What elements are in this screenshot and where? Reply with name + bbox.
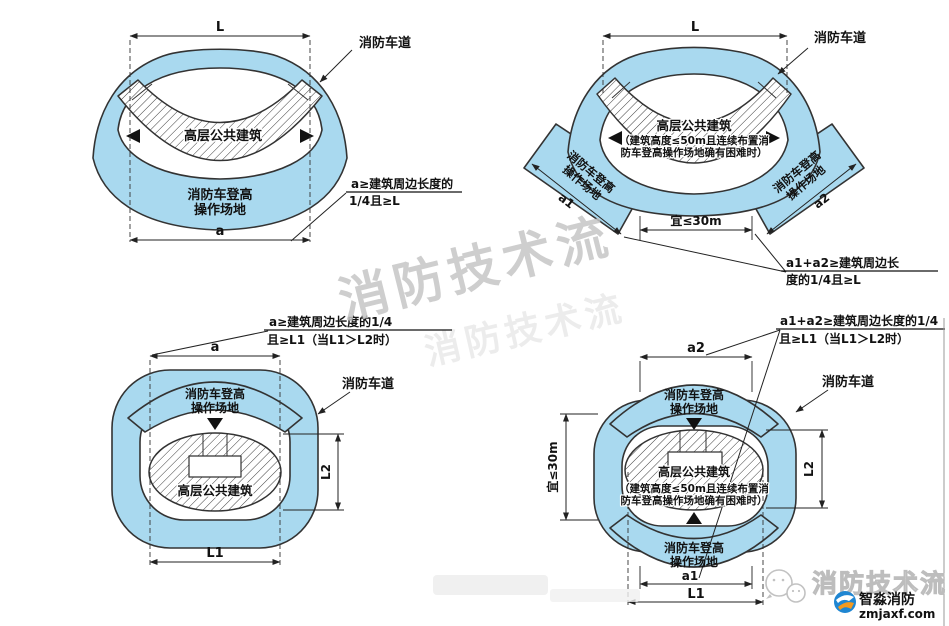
dim-label-gap: 宜≤30m bbox=[545, 441, 560, 492]
fire-lane-label: 消防车道 bbox=[822, 374, 874, 390]
building-label: 高层公共建筑 bbox=[177, 483, 253, 498]
dim-label-a2: a2 bbox=[687, 341, 705, 356]
operation-area-label-line1: 消防车登高 bbox=[187, 187, 252, 203]
building-label: 高层公共建筑 bbox=[184, 128, 262, 144]
fire-lane-leader bbox=[778, 48, 808, 74]
fire-lane-leader bbox=[320, 50, 352, 82]
dim-label-L2: L2 bbox=[319, 464, 333, 480]
panel-two-opposite-areas: a1+a2≥建筑周边长度的1/4 且≥L1（当L1＞L2时） a2 消防车登高 … bbox=[545, 313, 945, 607]
building-core bbox=[189, 456, 241, 477]
fire-lane-label: 消防车道 bbox=[342, 376, 394, 392]
operation-area-bottom-line2: 操作场地 bbox=[670, 554, 718, 569]
rule-note-line1: a≥建筑周边长度的 bbox=[351, 176, 453, 191]
fire-lane-label: 消防车道 bbox=[814, 30, 866, 46]
operation-area-label-line2: 操作场地 bbox=[191, 400, 239, 415]
rule-note-line2: 1/4且≥L bbox=[349, 194, 400, 208]
building-note-line2: 防车登高操作场地确有困难时） bbox=[621, 146, 768, 159]
dim-label-L: L bbox=[216, 20, 224, 35]
building-note-line1: （建筑高度≤50m且连续布置消 bbox=[619, 134, 769, 147]
note-leader bbox=[706, 330, 780, 355]
brand-logo-icon bbox=[834, 591, 856, 613]
fire-access-diagram-figure: 消防技术流 L a 消防车道 高层公共建筑 消防车登高 操作场地 a≥建筑周边长… bbox=[0, 0, 949, 626]
brand-watermark: 消防技术流 智淼消防 zmjaxf.com bbox=[766, 569, 947, 621]
panel-continuous-single-area: L a 消防车道 高层公共建筑 消防车登高 操作场地 a≥建筑周边长度的 1/4… bbox=[93, 20, 462, 242]
rule-note-line2: 且≥L1（当L1＞L2时） bbox=[267, 332, 397, 347]
fire-lane-label: 消防车道 bbox=[359, 35, 411, 51]
dim-label-L1: L1 bbox=[687, 587, 704, 602]
operation-area-label-line1: 消防车登高 bbox=[185, 386, 245, 401]
fire-lane-leader bbox=[796, 390, 828, 412]
rule-note-line1: a1+a2≥建筑周边长度的1/4 bbox=[780, 313, 938, 328]
rule-note-line2: 且≥L1（当L1＞L2时） bbox=[779, 331, 909, 346]
building-label: 高层公共建筑 bbox=[658, 464, 730, 479]
panel-long-side-single-area: a≥建筑周边长度的1/4 且≥L1（当L1＞L2时） a 消防车登高 操作场地 … bbox=[112, 314, 452, 568]
operation-area-top-line1: 消防车登高 bbox=[664, 387, 724, 402]
watermark-remnant bbox=[433, 575, 548, 595]
dim-label-a: a bbox=[216, 224, 225, 239]
dim-label-gap: 宜≤30m bbox=[670, 213, 721, 228]
dim-label-L2: L2 bbox=[802, 461, 816, 477]
fire-lane-leader bbox=[318, 392, 350, 414]
building-label: 高层公共建筑 bbox=[656, 118, 732, 133]
operation-area-bottom-line1: 消防车登高 bbox=[664, 540, 724, 555]
dim-label-a: a bbox=[211, 340, 220, 355]
rule-note-line2: 度的1/4且≥L bbox=[786, 272, 861, 287]
brand-name: 智淼消防 bbox=[858, 591, 915, 608]
watermark-remnant bbox=[550, 589, 640, 602]
diagram-svg: 消防技术流 L a 消防车道 高层公共建筑 消防车登高 操作场地 a≥建筑周边长… bbox=[0, 0, 949, 626]
building-note-line1: （建筑高度≤50m且连续布置消 bbox=[619, 482, 769, 495]
rule-note-line1: a1+a2≥建筑周边长 bbox=[786, 255, 900, 270]
building-note-line2: 防车登高操作场地确有困难时） bbox=[621, 494, 768, 507]
dim-label-L1: L1 bbox=[206, 546, 223, 561]
brand-site: zmjaxf.com bbox=[859, 607, 935, 621]
wechat-icon bbox=[766, 570, 805, 602]
operation-area-label-line2: 操作场地 bbox=[194, 202, 246, 218]
dim-label-L: L bbox=[691, 20, 699, 35]
dim-label-a1: a1 bbox=[682, 569, 698, 583]
operation-area-top-line2: 操作场地 bbox=[670, 401, 718, 416]
